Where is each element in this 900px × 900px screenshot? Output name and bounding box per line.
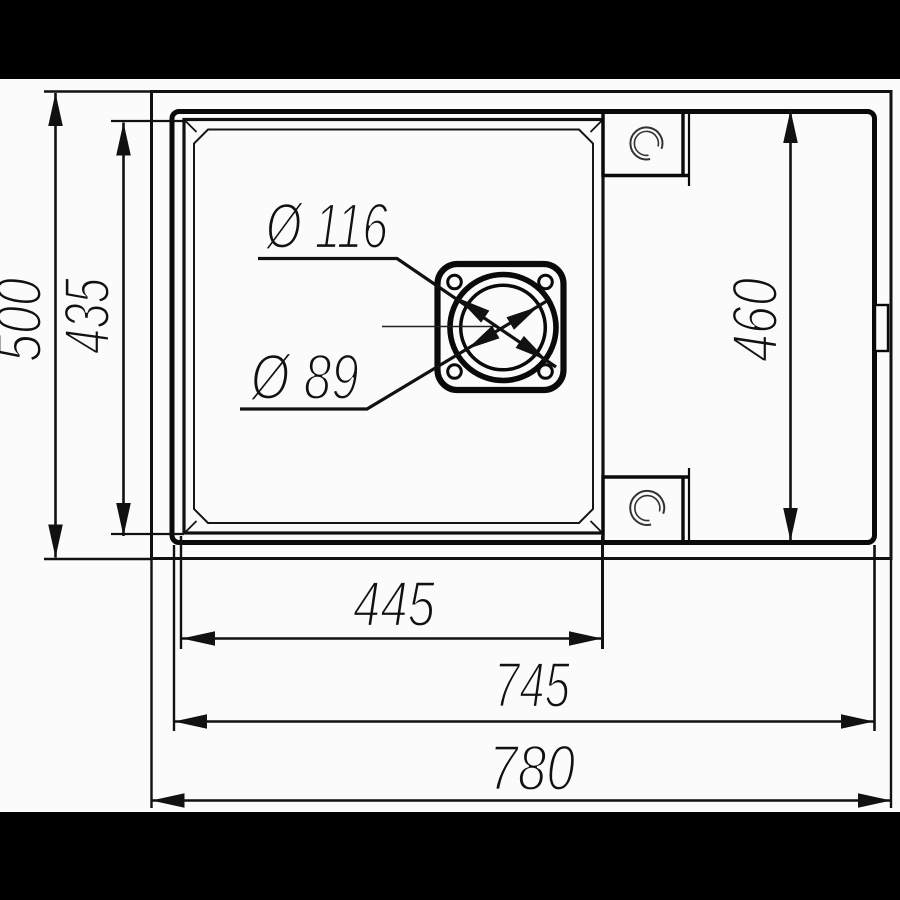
svg-text:445: 445 <box>353 568 435 640</box>
svg-text:435: 435 <box>51 278 123 354</box>
svg-text:460: 460 <box>719 278 791 362</box>
svg-text:780: 780 <box>489 732 575 804</box>
svg-text:Ø 89: Ø 89 <box>249 341 359 413</box>
svg-text:745: 745 <box>494 649 570 721</box>
svg-text:Ø 116: Ø 116 <box>265 190 389 262</box>
svg-text:500: 500 <box>0 278 55 362</box>
